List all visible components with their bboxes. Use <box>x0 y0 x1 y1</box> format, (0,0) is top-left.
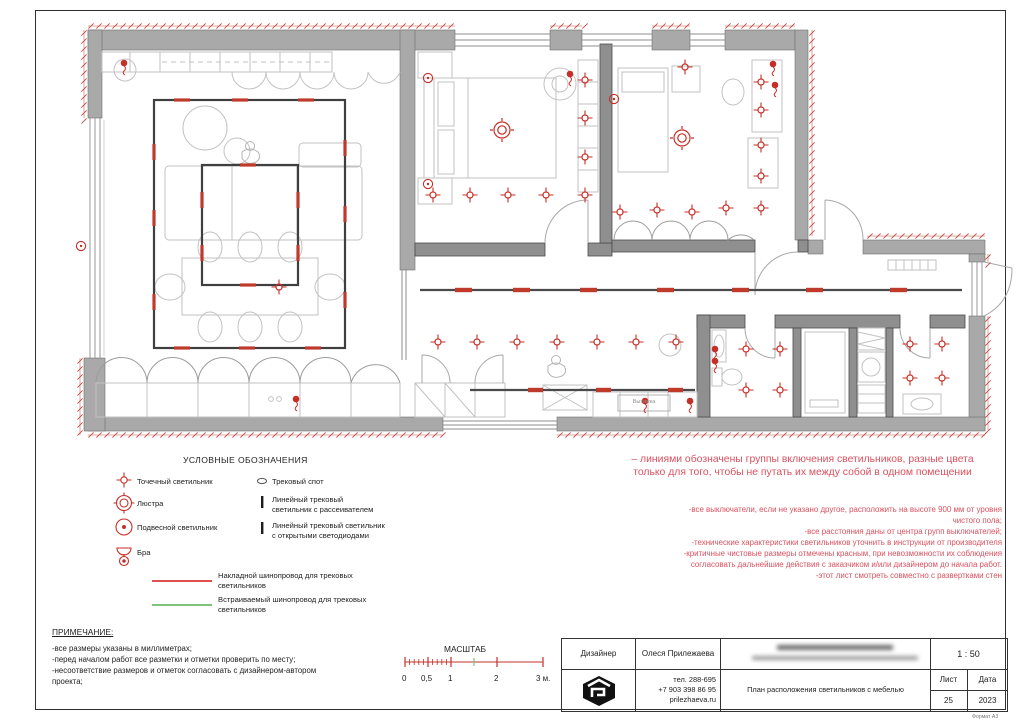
point-light-symbol <box>426 188 441 203</box>
pendant-dot-symbol <box>293 396 300 411</box>
sconce-symbol <box>423 179 432 188</box>
red-note-line: чистого пола; <box>600 515 1002 526</box>
track-segment <box>528 388 543 392</box>
sheet-label: Лист <box>930 675 967 684</box>
point-light-symbol <box>903 371 918 386</box>
redacted-project-address <box>752 656 918 660</box>
website: prilezhaeva.ru <box>636 695 716 705</box>
exhaust-label: Вытяжка <box>618 399 670 405</box>
recessed-track-swatch <box>152 604 212 606</box>
red-note-line: -все расстояния даны от центра групп вык… <box>600 526 1002 537</box>
point-light-symbol <box>719 201 734 216</box>
red-note-line: согласовать дальнейшие действия с заказч… <box>600 559 1002 570</box>
chandelier-symbol <box>490 118 514 142</box>
furniture <box>96 52 941 417</box>
point-light-symbol <box>754 201 769 216</box>
point-light-symbol <box>578 150 593 165</box>
scale-tick-label: 3 м. <box>536 674 550 683</box>
phone2: +7 903 398 86 95 <box>636 685 716 695</box>
point-light-symbol <box>739 342 754 357</box>
point-light-symbol <box>739 383 754 398</box>
track-segment <box>806 288 823 292</box>
walls <box>84 30 985 431</box>
track-segment <box>890 288 907 292</box>
designer-name: Олеся Прилежаева <box>636 649 720 658</box>
floor-plan <box>0 0 1024 724</box>
legend-title: УСЛОВНЫЕ ОБОЗНАЧЕНИЯ <box>183 455 308 465</box>
point-light-symbol <box>935 371 950 386</box>
point-light-symbol <box>754 138 769 153</box>
point-light-symbol <box>678 60 693 75</box>
legend-chandelier-label: Люстра <box>137 499 163 509</box>
note-line: -все размеры указаны в миллиметрах; <box>52 644 192 655</box>
track-loops <box>154 100 345 348</box>
pendant-dot-symbol <box>770 61 777 76</box>
sconce-icon <box>117 548 131 555</box>
legend-pendant-label: Подвесной светильник <box>137 523 217 533</box>
point-light-symbol <box>470 335 485 350</box>
scale-bar-title: МАСШТАБ <box>444 644 486 654</box>
note-line: проекта; <box>52 677 83 688</box>
scale-tick-label: 1 <box>448 674 452 683</box>
date-value: 2023 <box>968 696 1007 705</box>
drawing-sheet: Вытяжка УСЛОВНЫЕ ОБОЗНАЧЕНИЯ Точечный св… <box>0 0 1024 724</box>
pendant-dot-symbol <box>712 358 719 373</box>
sconce-symbol <box>76 241 85 250</box>
scale-value: 1 : 50 <box>930 649 1007 659</box>
red-note-line: -этот лист смотреть совместно с развертк… <box>600 570 1002 581</box>
legend-linear-diffuser-label: Линейный трековый светильник с рассеиват… <box>272 495 373 514</box>
scale-bar <box>405 657 543 667</box>
scale-tick-label: 2 <box>494 674 498 683</box>
legend-linear-led-label: Линейный трековый светильник с открытыми… <box>272 521 385 540</box>
point-light-symbol <box>272 280 287 295</box>
notes-title: ПРИМЕЧАНИЕ: <box>52 627 113 637</box>
chandelier-icon <box>117 496 132 511</box>
redacted-project-name <box>777 645 893 650</box>
track-segment <box>513 288 530 292</box>
red-note-line: -все выключатели, если не указано другое… <box>600 504 1002 515</box>
note-line: -перед началом работ все разметки и отме… <box>52 655 295 666</box>
designer-logo <box>582 675 616 707</box>
track-segment <box>732 288 749 292</box>
point-light-symbol <box>431 335 446 350</box>
format-label: Формат А3 <box>972 714 998 720</box>
designer-label: Дизайнер <box>562 649 635 658</box>
pendant-dot-symbol <box>772 82 779 97</box>
red-note-line: -технические характеристики светильников… <box>600 537 1002 548</box>
point-light-symbol <box>903 337 918 352</box>
phone1: тел. 288-695 <box>636 675 716 685</box>
date-label: Дата <box>968 675 1007 684</box>
sheet-number: 25 <box>930 696 967 705</box>
point-light-symbol <box>578 111 593 126</box>
pendant-dot-symbol <box>687 398 694 413</box>
point-light-symbol <box>578 73 593 88</box>
track-segment <box>657 288 674 292</box>
linear-track-diffuser-icon <box>261 496 263 508</box>
point-light-symbol <box>685 205 700 220</box>
point-light-symbol <box>754 75 769 90</box>
legend-symbols-column1 <box>110 470 138 570</box>
legend-surface-track-label: Накладной шинопровод для трековых светил… <box>218 571 353 590</box>
pendant-dot-symbol <box>121 60 128 75</box>
windows <box>90 34 982 429</box>
red-note-line: -критичные чистовые размеры отмечены кра… <box>600 548 1002 559</box>
point-light-symbol <box>754 169 769 184</box>
legend-recessed-track-label: Встраиваемый шинопровод для трековых све… <box>218 595 366 614</box>
surface-track-swatch <box>152 580 212 582</box>
legend-track-spot-label: Трековый спот <box>272 477 324 487</box>
point-light-symbol <box>650 203 665 218</box>
point-light-symbol <box>935 337 950 352</box>
legend-sconce-label: Бра <box>137 548 150 558</box>
scale-tick-label: 0 <box>402 674 406 683</box>
track-spot-icon <box>258 478 267 483</box>
point-light-symbol <box>590 335 605 350</box>
drawing-title: План расположения светильников с мебелью <box>722 685 929 694</box>
group-switching-note: – линиями обозначены группы включения св… <box>600 453 1005 479</box>
point-light-symbol <box>773 383 788 398</box>
legend-symbols-column2 <box>252 470 272 545</box>
chandelier-symbol <box>670 126 694 150</box>
light-symbols <box>76 60 949 414</box>
point-light-symbol <box>629 335 644 350</box>
point-light-symbol <box>613 205 628 220</box>
track-segment <box>668 388 683 392</box>
track-segment <box>580 288 597 292</box>
linear-track-led-icon <box>261 522 263 534</box>
point-light-symbol <box>550 335 565 350</box>
point-light-symbol <box>754 103 769 118</box>
title-block: Дизайнер Олеся Прилежаева 1 : 50 тел. 28… <box>561 638 1008 712</box>
note-line: -несоответствие размеров и отметок согла… <box>52 666 316 677</box>
point-light-symbol <box>539 188 554 203</box>
track-segment <box>596 388 611 392</box>
point-light-symbol <box>501 188 516 203</box>
track-segment <box>455 288 472 292</box>
scale-tick-label: 0,5 <box>421 674 432 683</box>
point-light-icon <box>121 477 127 483</box>
point-light-symbol <box>463 188 478 203</box>
legend-point-label: Точечный светильник <box>137 477 213 487</box>
point-light-symbol <box>510 335 525 350</box>
